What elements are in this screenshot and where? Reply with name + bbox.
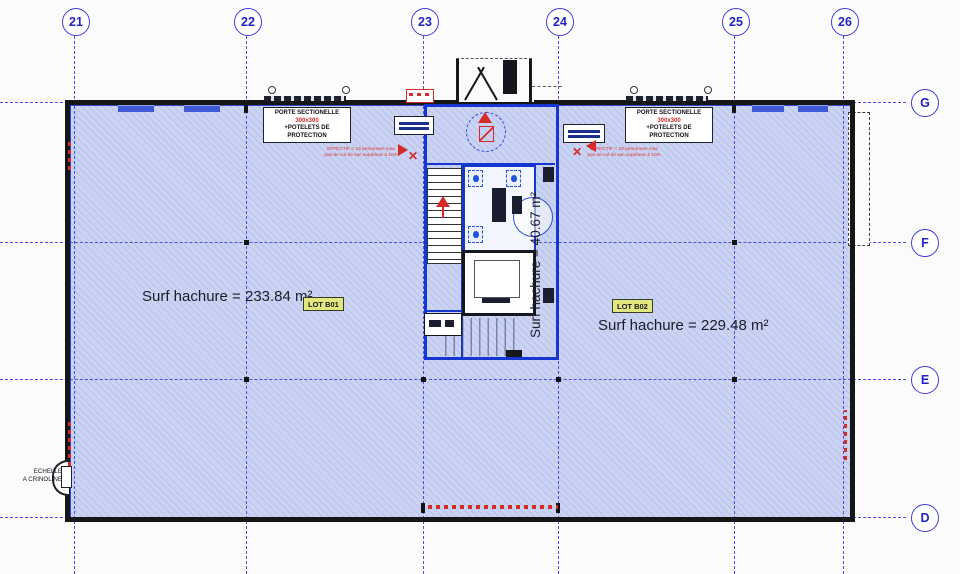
core-door-top-right xyxy=(543,167,554,182)
elevator-cabin xyxy=(474,260,520,298)
axis-bubble-21: 21 xyxy=(62,8,90,36)
column-mark xyxy=(732,377,737,382)
toilet-icon xyxy=(506,170,521,187)
bollard-icon xyxy=(630,86,638,94)
service-box-detail xyxy=(445,320,454,327)
axis-bubble-G: G xyxy=(911,89,939,117)
window-inset xyxy=(118,105,154,112)
porte-size: 300x300 xyxy=(657,118,680,124)
window-inset xyxy=(752,105,784,112)
bollard-icon xyxy=(342,86,350,94)
elevator-door-mark xyxy=(482,298,510,303)
axis-bubble-23: 23 xyxy=(411,8,439,36)
red-hatch-left-wall xyxy=(68,418,71,466)
stair-arrow-stem xyxy=(442,206,444,218)
echelle-line2: A CRINOLINE xyxy=(23,476,62,483)
toilet-icon xyxy=(468,226,483,243)
effectif-note-right: EFFECTIF < 19 personnes max pas de cul d… xyxy=(578,147,670,159)
extinguisher-icon xyxy=(479,126,494,142)
entrance-dashed-link xyxy=(532,86,562,87)
sanitary-fixture-small xyxy=(512,196,522,214)
lot-tag-b01: LOT B01 xyxy=(303,297,344,311)
column-mark xyxy=(556,377,561,382)
effectif-line2: pas de cul de sac supérieur à 10m xyxy=(587,153,660,158)
staircase-up xyxy=(427,168,462,264)
porte-name: PORTE SECTIONELLE xyxy=(275,110,339,116)
axis-bubble-26: 26 xyxy=(831,8,859,36)
porte-extra: +POTELETS DE PROTECTION xyxy=(284,125,329,139)
service-box-detail xyxy=(429,320,441,327)
fire-equipment-x: ✕ xyxy=(408,150,418,162)
axis-bubble-24: 24 xyxy=(546,8,574,36)
toilet-icon xyxy=(468,170,483,187)
sectional-door-right xyxy=(626,96,708,101)
wall-tick xyxy=(421,503,425,513)
effectif-note-left: EFFECTIF < 19 personnes max pas de cul d… xyxy=(315,147,407,159)
red-hatch-bottom xyxy=(428,505,558,509)
surface-label-b02: Surf hachure = 229.48 m² xyxy=(598,317,769,334)
core-door-leaf xyxy=(506,350,522,357)
axis-bubble-D: D xyxy=(911,504,939,532)
porte-extra: +POTELETS DE PROTECTION xyxy=(646,125,691,139)
extinguisher-arrow-icon xyxy=(478,112,492,123)
echelle-line1: ECHELLE xyxy=(34,468,62,475)
axis-bubble-F: F xyxy=(911,229,939,257)
porte-sectionnelle-note-right: PORTE SECTIONELLE 300x300 +POTELETS DE P… xyxy=(625,107,713,143)
wall-door-inset xyxy=(61,466,72,488)
core-partition-h2 xyxy=(424,310,463,312)
red-hatch-left-wall-top xyxy=(68,140,71,170)
wall-tick xyxy=(732,104,736,113)
column-mark xyxy=(421,377,426,382)
red-annotation-marks xyxy=(409,93,429,96)
core-door-bottom-right xyxy=(543,288,554,303)
vestibule-wall-right xyxy=(529,58,532,102)
window-inset xyxy=(184,105,220,112)
wall-tick xyxy=(244,104,248,113)
column-mark xyxy=(244,240,249,245)
red-hatch-right-wall xyxy=(844,410,847,460)
lot-tag-b02: LOT B02 xyxy=(612,299,653,313)
sanitary-fixture-block xyxy=(492,188,506,222)
effectif-line2: pas de cul de sac supérieur à 10m xyxy=(324,153,397,158)
echelle-crinoline-label: ECHELLE A CRINOLINE xyxy=(10,468,62,484)
window-inset xyxy=(798,105,828,112)
bollard-icon xyxy=(268,86,276,94)
bollard-icon xyxy=(704,86,712,94)
door-tag-left xyxy=(394,116,434,135)
porte-size: 300x300 xyxy=(295,118,318,124)
effectif-line1: EFFECTIF < 19 personnes max xyxy=(327,147,395,152)
canopy-dashed-edge xyxy=(456,58,532,59)
porte-sectionnelle-note-left: PORTE SECTIONELLE 300x300 +POTELETS DE P… xyxy=(263,107,351,143)
surface-label-core: Surf hachure = 40.67 m² xyxy=(528,192,543,338)
effectif-line1: EFFECTIF < 19 personnes max xyxy=(590,147,658,152)
axis-bubble-25: 25 xyxy=(722,8,750,36)
door-tag-right xyxy=(563,124,605,143)
surface-label-b01: Surf hachure = 233.84 m² xyxy=(142,288,313,305)
entrance-door-panel xyxy=(503,60,517,94)
porte-name: PORTE SECTIONELLE xyxy=(637,110,701,116)
floor-plan-drawing: 21 22 23 24 25 26 G F E D xyxy=(0,0,960,574)
sectional-door-left xyxy=(264,96,346,101)
column-mark xyxy=(732,240,737,245)
red-annotation-box xyxy=(406,89,434,103)
vestibule-wall-left xyxy=(456,58,459,102)
column-mark xyxy=(244,377,249,382)
axis-bubble-22: 22 xyxy=(234,8,262,36)
axis-bubble-E: E xyxy=(911,366,939,394)
